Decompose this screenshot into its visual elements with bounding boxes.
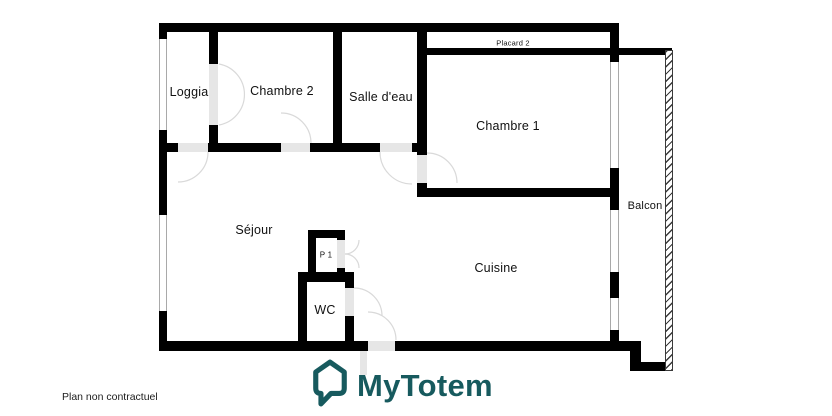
door-arc-entrance (368, 312, 396, 340)
wall-right-c (610, 272, 619, 298)
wall-left-upper (159, 23, 167, 39)
door-opening-entrance (368, 341, 395, 351)
wall-chambre1-left-upper (417, 23, 427, 155)
window-cuisine-lower (610, 298, 619, 330)
balcony-railing-hatch (665, 50, 673, 371)
door-opening-salledeau (380, 143, 412, 152)
door-arc-salledeau (380, 152, 412, 184)
door-arc-loggia (178, 152, 208, 182)
wall-right-a (610, 23, 619, 62)
window-chambre1 (610, 62, 619, 168)
wall-right-d (610, 330, 619, 351)
door-arcs (0, 0, 832, 416)
wall-p1-right-upper (337, 230, 345, 240)
window-cuisine-upper (610, 210, 619, 272)
room-label-cuisine: Cuisine (474, 261, 517, 275)
room-label-salledeau: Salle d'eau (349, 90, 413, 104)
mytotem-logo-text: MyTotem (357, 370, 493, 401)
floorplan-canvas: Loggia Chambre 2 Salle d'eau Chambre 1 P… (0, 0, 832, 416)
wall-p1-left (308, 230, 316, 272)
door-opening-chambre2 (281, 143, 310, 152)
room-label-p1: P 1 (320, 251, 332, 260)
door-opening-p1 (337, 240, 345, 268)
window-sejour (159, 215, 167, 311)
window-loggia (159, 39, 167, 130)
door-opening-wc (345, 288, 354, 316)
room-label-sejour: Séjour (235, 223, 272, 237)
plan-disclaimer: Plan non contractuel (62, 391, 158, 403)
wall-wc-right-upper (345, 272, 354, 288)
door-arc-chambre1 (427, 153, 457, 183)
room-label-loggia: Loggia (170, 85, 209, 99)
wall-wc-right-lower (345, 316, 354, 351)
wall-placard-bottom (417, 48, 615, 55)
door-opening-loggia (178, 143, 208, 152)
wall-sejour-top-b (208, 143, 281, 152)
wall-wc-left (298, 272, 307, 351)
wall-loggia-divider-upper (209, 23, 218, 64)
door-arc-p1-upper (345, 240, 359, 254)
wall-chambre2-salledeau-divider (333, 23, 342, 152)
door-arc-wc (354, 288, 382, 316)
door-arc-loggia-chambre2 (219, 64, 244, 125)
mytotem-logo: MyTotem (0, 0, 832, 416)
wall-balcony-top (615, 48, 672, 55)
wall-top (159, 23, 619, 32)
door-opening-loggia-chambre2 (209, 64, 218, 125)
door-arc-p1-lower (345, 254, 359, 268)
room-label-chambre2: Chambre 2 (250, 84, 314, 98)
room-label-wc: WC (314, 303, 335, 317)
door-opening-chambre1 (417, 155, 427, 183)
room-label-placard2: Placard 2 (496, 39, 530, 48)
entrance-door-leaf (360, 351, 367, 375)
room-label-chambre1: Chambre 1 (476, 119, 540, 133)
wall-sejour-top-a (159, 143, 178, 152)
door-arc-chambre2 (281, 113, 311, 143)
wall-cuisine-top (417, 188, 619, 197)
wall-bottom-left (159, 341, 368, 351)
wall-sejour-top-c (310, 143, 380, 152)
wall-sejour-top-d (412, 143, 427, 152)
mytotem-logo-icon (311, 359, 349, 407)
room-label-balcon: Balcon (628, 200, 663, 212)
wall-bottom-right (395, 341, 641, 351)
